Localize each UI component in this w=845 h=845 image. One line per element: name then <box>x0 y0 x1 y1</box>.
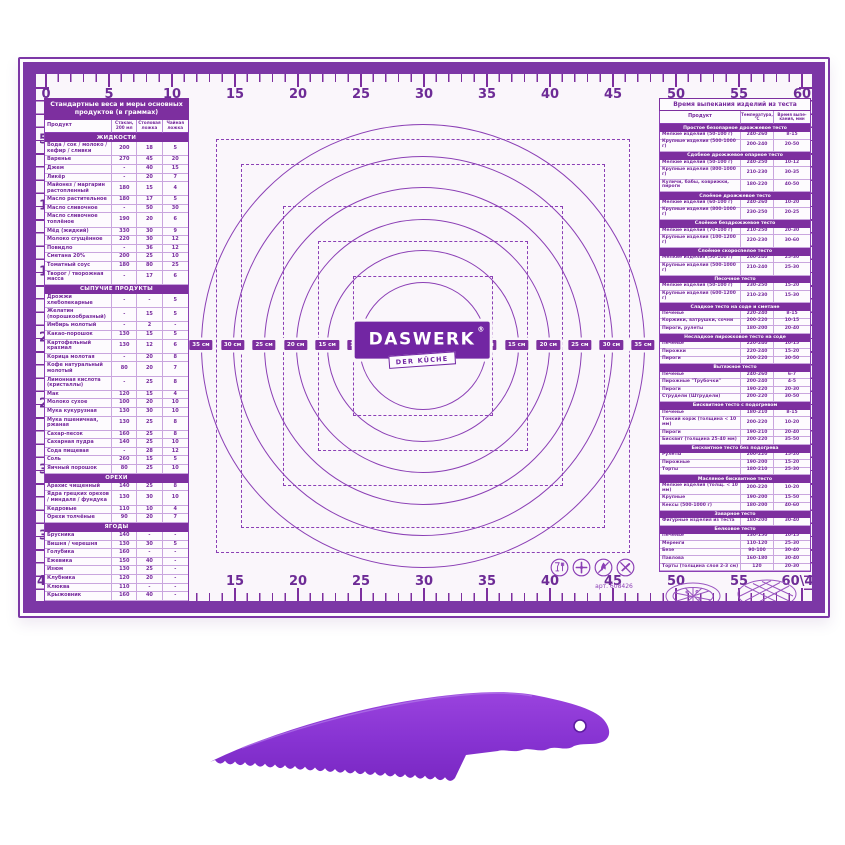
cell: 10 <box>137 506 162 515</box>
cell: 40-60 <box>774 503 810 511</box>
cell: 5 <box>163 331 188 340</box>
ruler-number: 30 <box>415 574 433 589</box>
table-row: Масло сливочное топлёное190206 <box>45 213 188 227</box>
food-safe-icon <box>550 558 569 577</box>
product-photo: 051015202530354045505560 405101520253035… <box>0 0 845 845</box>
cell: Масло сливочное <box>45 205 112 214</box>
cell: 30 <box>137 228 162 237</box>
cell: 330 <box>112 228 137 237</box>
cell: 4 <box>163 182 188 196</box>
table-row: Брусника140-- <box>45 532 188 541</box>
cell: Вишня / черешня <box>45 541 112 550</box>
cell: 130 <box>112 491 137 505</box>
cell: 12 <box>137 340 162 354</box>
cell: 10-20 <box>774 417 810 429</box>
cell: 10 <box>163 491 188 505</box>
cell: 7 <box>163 174 188 183</box>
ruler-number: 45 <box>604 87 622 102</box>
table-row: Варенье2704520 <box>45 156 188 165</box>
cell: 200-220 <box>741 394 774 402</box>
cell: 130 <box>112 408 137 417</box>
column-header: Температура, °C <box>741 111 774 124</box>
diameter-label: 20 см <box>537 340 560 350</box>
cell: 25 <box>137 253 162 262</box>
section-header: ЖИДКОСТИ <box>45 133 188 142</box>
table-row: Кедровые110104 <box>45 506 188 515</box>
cell: 220 <box>112 236 137 245</box>
cell: 200-220 <box>741 437 774 445</box>
cell: - <box>163 584 188 593</box>
cell: 15 <box>137 308 162 322</box>
table-row: Фигурные изделия из теста180-20030-40 <box>660 518 810 526</box>
cell: Клюква <box>45 584 112 593</box>
cell: Мёд (жидкий) <box>45 228 112 237</box>
table-row: Джем-4015 <box>45 165 188 174</box>
cell: - <box>112 448 137 457</box>
table-row: Пироги200-22030-50 <box>660 357 810 365</box>
diameter-label: 15 см <box>505 340 528 350</box>
cell: Томатный соус <box>45 262 112 271</box>
cell: Тонкий корж (толщина < 10 мм) <box>660 417 741 429</box>
cell: 20 <box>137 514 162 523</box>
column-header: Продукт <box>660 111 741 124</box>
cell: - <box>112 294 137 308</box>
ruler-number: 30 <box>415 87 433 102</box>
cell: 7 <box>163 362 188 376</box>
cell: 260 <box>112 456 137 465</box>
diameter-label: 25 см <box>252 340 275 350</box>
cell: 2 <box>137 322 162 331</box>
column-header: Продукт <box>45 120 112 133</box>
column-header: Чайная ложка <box>163 120 188 133</box>
baking-mat: 051015202530354045505560 405101520253035… <box>18 57 830 618</box>
cell: 110 <box>112 584 137 593</box>
cell: Какао-порошок <box>45 331 112 340</box>
table-row: Клубника12020- <box>45 575 188 584</box>
cell: - <box>163 592 188 601</box>
cell: Молоко сгущённое <box>45 236 112 245</box>
ruler-number: 25 <box>352 574 370 589</box>
cell: 140 <box>112 532 137 541</box>
cell: 130 <box>112 331 137 340</box>
cell: 10 <box>163 465 188 474</box>
table-row: Мелкие изделия (50-100 г)200-24025-30 <box>660 256 810 264</box>
cell: 10-20 <box>774 200 810 208</box>
cell: 40 <box>137 592 162 601</box>
cell: - <box>137 549 162 558</box>
table-row: Майонез / маргарин растопленный180154 <box>45 182 188 196</box>
cell: - <box>163 549 188 558</box>
section-header: Слоёное бездрожжевое тесто <box>660 220 810 228</box>
baking-table-header: ПродуктТемпература, °CВремя выпе- кания,… <box>660 111 810 124</box>
cell: Павлова <box>660 556 741 564</box>
cell: 20 <box>137 354 162 363</box>
cell: 35-50 <box>774 437 810 445</box>
table-row: Лимонная кислота (кристаллы)-258 <box>45 377 188 391</box>
cell: - <box>137 584 162 593</box>
cell: 180 <box>112 262 137 271</box>
cell: 130 <box>112 566 137 575</box>
cell: 20 <box>137 362 162 376</box>
brand-logo: DASWERK® DER KÜCHE <box>355 322 490 367</box>
cell: - <box>112 205 137 214</box>
table-row: Крупные изделия (600-1200 г)210-23015-30 <box>660 291 810 303</box>
ruler-number: 40 <box>541 87 559 102</box>
cell: 8 <box>163 431 188 440</box>
cell: 220-230 <box>741 235 774 247</box>
ruler-number: 15 <box>226 87 244 102</box>
cell: 120 <box>112 391 137 400</box>
cell: 150 <box>112 558 137 567</box>
cell: 160 <box>112 549 137 558</box>
cell: 190-200 <box>741 495 774 503</box>
table-row: Творог / творожная масса-176 <box>45 271 188 285</box>
cell: 20-25 <box>774 208 810 220</box>
section-header: ОРЕХИ <box>45 474 188 483</box>
diameter-label: 35 см <box>189 340 212 350</box>
cell: 25-30 <box>774 256 810 264</box>
ruler-number: 35 <box>478 87 496 102</box>
cell: Соль <box>45 456 112 465</box>
cell: 30-40 <box>774 518 810 526</box>
baking-time-table: Время выпекания изделий из тестаПродуктТ… <box>659 98 811 572</box>
cell: 25 <box>137 465 162 474</box>
cell: Молоко сухое <box>45 399 112 408</box>
cell: 20 <box>137 399 162 408</box>
table-row: Крупные изделия (800-1000 г)210-23030-35 <box>660 167 810 179</box>
cell: 25-30 <box>774 468 810 476</box>
weights-table: ПродуктСтакан, 200 млСтоловая ложкаЧайна… <box>44 120 189 601</box>
knife-hang-hole <box>574 720 586 732</box>
cell: 130 <box>112 417 137 431</box>
cell: Дрожжи хлебопекарные <box>45 294 112 308</box>
ruler-number: 20 <box>289 574 307 589</box>
cell: 230-250 <box>741 283 774 291</box>
cell: 200 <box>112 253 137 262</box>
table-row: Мелкие изделия (50-100 г)230-25015-20 <box>660 283 810 291</box>
cell: 200-220 <box>741 483 774 495</box>
cell: 220-240 <box>741 342 774 350</box>
cell: 10-12 <box>774 160 810 168</box>
cell: 140 <box>112 483 137 492</box>
cell: Майонез / маргарин растопленный <box>45 182 112 196</box>
ruler-number: 20 <box>289 87 307 102</box>
cell: 8 <box>163 377 188 391</box>
cell: 30-50 <box>774 357 810 365</box>
cell: 8 <box>163 417 188 431</box>
cell: Струдели (Штрудели) <box>660 394 741 402</box>
cell: Клубника <box>45 575 112 584</box>
table-row: Печенье220-24010-15 <box>660 342 810 350</box>
column-header: Столовая ложка <box>137 120 162 133</box>
cell: 30 <box>137 491 162 505</box>
table-row: Вишня / черешня130305 <box>45 541 188 550</box>
cell: 10 <box>163 439 188 448</box>
cell: - <box>112 354 137 363</box>
cell: 15-20 <box>774 283 810 291</box>
measures-title: Стандартные веса и меры основных продукт… <box>44 98 189 120</box>
cell: Крупные изделия (500-1000 г) <box>660 140 741 152</box>
ruler-number: 35 <box>478 574 496 589</box>
cell: Торты <box>660 468 741 476</box>
cell: Мак <box>45 391 112 400</box>
ruler-ticks-top <box>45 74 808 82</box>
cell: Крупные изделия (100-1200 г) <box>660 235 741 247</box>
cell: 40-50 <box>774 180 810 192</box>
table-row: Повидло-3612 <box>45 245 188 254</box>
table-row: Сода пищевая-2812 <box>45 448 188 457</box>
table-row: Дрожжи хлебопекарные--5 <box>45 294 188 308</box>
cell: - <box>163 558 188 567</box>
cell: - <box>163 575 188 584</box>
cell: 10 <box>163 253 188 262</box>
table-row: Мак120154 <box>45 391 188 400</box>
cell: 180-220 <box>741 180 774 192</box>
cell: 20-30 <box>774 228 810 236</box>
no-open-flame-icon <box>594 558 613 577</box>
section-header: Простое безопарное дрожжевое тесто <box>660 124 810 132</box>
table-row: Ядра грецких орехов / миндаля / фундука1… <box>45 491 188 505</box>
cell: 25 <box>163 262 188 271</box>
table-row: Ежевика15040- <box>45 558 188 567</box>
cell: Куличи, бабы, коврижки, пироги <box>660 180 741 192</box>
table-row: Имбирь молотый-2- <box>45 322 188 331</box>
crossed-cutlery-icon <box>572 558 591 577</box>
no-cutting-icon <box>616 558 635 577</box>
table-row: Крыжовник16040- <box>45 592 188 601</box>
table-row: Пирожные "Трубочки"200-2404-5 <box>660 379 810 387</box>
cell: Печенье <box>660 342 741 350</box>
cell: Картофельный крахмал <box>45 340 112 354</box>
section-header: Масляное бисквитное тесто <box>660 475 810 483</box>
cell: 10-15 <box>774 342 810 350</box>
table-row: Крупные изделия (500-1000 г)200-24020-50 <box>660 140 810 152</box>
table-row: Соль260155 <box>45 456 188 465</box>
cell: 20 <box>137 213 162 227</box>
table-row: Мука пшеничная, ржаная130258 <box>45 417 188 431</box>
cell: 12 <box>163 236 188 245</box>
cell: 12 <box>163 448 188 457</box>
section-header: Слоёное дрожжевое тесто <box>660 192 810 200</box>
table-row: Струдели (Штрудели)200-22030-50 <box>660 394 810 402</box>
article-number: арт. 608426 <box>574 583 654 590</box>
weights-table-header: ПродуктСтакан, 200 млСтоловая ложкаЧайна… <box>45 120 188 133</box>
cell: 4 <box>163 391 188 400</box>
cell: 8 <box>163 354 188 363</box>
cell: 4-5 <box>774 379 810 387</box>
cell: Пирожные "Трубочки" <box>660 379 741 387</box>
cell: 30 <box>137 541 162 550</box>
table-row: Торты (толщина слоя 2-3 см)12020-30 <box>660 564 810 572</box>
cell: - <box>112 174 137 183</box>
knife-body <box>210 692 609 781</box>
table-row: Мёд (жидкий)330309 <box>45 228 188 237</box>
cell: Творог / творожная масса <box>45 271 112 285</box>
cell: 10 <box>163 408 188 417</box>
table-row: Мука кукурузная1303010 <box>45 408 188 417</box>
table-row: Томатный соус1808025 <box>45 262 188 271</box>
cell: Мелкие изделия (50-100 г) <box>660 283 741 291</box>
table-row: Картофельный крахмал130126 <box>45 340 188 354</box>
cell: Варенье <box>45 156 112 165</box>
cell: 5 <box>163 294 188 308</box>
table-row: Ликёр-207 <box>45 174 188 183</box>
cell: 20 <box>137 575 162 584</box>
cell: 7 <box>163 514 188 523</box>
plastic-knife <box>202 682 622 804</box>
cell: 6 <box>163 340 188 354</box>
cell: 30 <box>163 205 188 214</box>
cell: Джем <box>45 165 112 174</box>
table-row: Крупные изделия (100-1200 г)220-23030-60 <box>660 235 810 247</box>
cell: 210-230 <box>741 167 774 179</box>
cell: 9 <box>163 228 188 237</box>
cell: Мелкие изделия (толщ. < 10 мм) <box>660 483 741 495</box>
cell: 80 <box>112 465 137 474</box>
cell: Лимонная кислота (кристаллы) <box>45 377 112 391</box>
cell: 25 <box>137 431 162 440</box>
table-row: Бисквит (толщина 25-40 мм)200-22035-50 <box>660 437 810 445</box>
cell: 10-20 <box>774 483 810 495</box>
table-row: Пироги, рулеты180-20020-40 <box>660 326 810 334</box>
table-row: Изюм13025- <box>45 566 188 575</box>
cell: Голубика <box>45 549 112 558</box>
cell: 270 <box>112 156 137 165</box>
cell: 130 <box>112 340 137 354</box>
cell: 190 <box>112 213 137 227</box>
cell: 180-200 <box>741 503 774 511</box>
cell: 36 <box>137 245 162 254</box>
cell: 40 <box>137 165 162 174</box>
cell: 130 <box>112 541 137 550</box>
cell: 17 <box>137 271 162 285</box>
cell: 40 <box>137 558 162 567</box>
cell: Яичный порошок <box>45 465 112 474</box>
table-row: Масло сливочное-5030 <box>45 205 188 214</box>
ruler-number: 25 <box>352 87 370 102</box>
cell: 180-210 <box>741 410 774 418</box>
cell: 240-260 <box>741 132 774 140</box>
cell: Крупные <box>660 495 741 503</box>
cell: 5 <box>163 196 188 205</box>
cell: 25 <box>137 377 162 391</box>
cell: 6 <box>163 271 188 285</box>
cell: 5 <box>163 541 188 550</box>
section-header: СЫПУЧИЕ ПРОДУКТЫ <box>45 285 188 294</box>
cell: 30-50 <box>774 394 810 402</box>
cell: 110 <box>112 506 137 515</box>
cell: 210-230 <box>741 291 774 303</box>
cell: Сметана 20% <box>45 253 112 262</box>
cell: - <box>112 245 137 254</box>
cell: Пироги, рулеты <box>660 326 741 334</box>
cell: - <box>112 377 137 391</box>
cell: 80 <box>112 362 137 376</box>
registered-mark: ® <box>477 326 486 334</box>
cell: Крупные изделия (800-1000 г) <box>660 208 741 220</box>
cell: 8 <box>163 483 188 492</box>
cell: Кофе натуральный молотый <box>45 362 112 376</box>
table-row: Арахис чищенный140258 <box>45 483 188 492</box>
cell: 12 <box>163 245 188 254</box>
cell: 30-40 <box>774 556 810 564</box>
cell: Крупные изделия (500-1000 г) <box>660 263 741 275</box>
table-row: Сахар-песок160258 <box>45 431 188 440</box>
cell: 30-60 <box>774 235 810 247</box>
care-icons <box>550 558 635 577</box>
cell: 240-250 <box>741 160 774 168</box>
cell: Ядра грецких орехов / миндаля / фундука <box>45 491 112 505</box>
cell: - <box>137 532 162 541</box>
cell: Пироги <box>660 357 741 365</box>
cell: - <box>137 294 162 308</box>
cell: 100 <box>112 399 137 408</box>
table-row: Вода / сок / молоко / кефир / сливки2001… <box>45 142 188 156</box>
table-row: Клюква110-- <box>45 584 188 593</box>
cell: 180 <box>112 196 137 205</box>
column-header: Стакан, 200 мл <box>112 120 137 133</box>
cell: 160 <box>112 431 137 440</box>
cell: 18 <box>137 142 162 156</box>
cell: Орехи толчёные <box>45 514 112 523</box>
table-row: Павлова160-18030-40 <box>660 556 810 564</box>
cell: - <box>112 308 137 322</box>
cell: Масло сливочное топлёное <box>45 213 112 227</box>
cell: 20 <box>163 156 188 165</box>
cell: 20-40 <box>774 326 810 334</box>
cell: 15 <box>163 165 188 174</box>
section-header: Бисквитное тесто с подогревом <box>660 402 810 410</box>
table-row: Крупные изделия (800-1000 г)230-25020-25 <box>660 208 810 220</box>
cell: Масло растительное <box>45 196 112 205</box>
cell: 25 <box>137 566 162 575</box>
cell: 160 <box>112 592 137 601</box>
measures-panel: Стандартные веса и меры основных продукт… <box>44 98 189 601</box>
cell: 210-240 <box>741 263 774 275</box>
diameter-label: 15 см <box>316 340 339 350</box>
cell: Желатин (порошкообразный) <box>45 308 112 322</box>
cell: Вода / сок / молоко / кефир / сливки <box>45 142 112 156</box>
mat-surface: 051015202530354045505560 405101520253035… <box>36 74 812 601</box>
cell: 15-30 <box>774 291 810 303</box>
cell: Сахарная пудра <box>45 439 112 448</box>
baking-table-title: Время выпекания изделий из теста <box>659 98 811 111</box>
cell: 50 <box>137 205 162 214</box>
cell: Мелкие изделия (50-100 г) <box>660 256 741 264</box>
cell: - <box>163 322 188 331</box>
cell: 5 <box>163 456 188 465</box>
table-row: Торты180-21025-30 <box>660 468 810 476</box>
cell: Кексы (500-1000 г) <box>660 503 741 511</box>
cell: 30 <box>137 236 162 245</box>
cell: 30 <box>137 408 162 417</box>
table-row: Сметана 20%2002510 <box>45 253 188 262</box>
cell: 15 <box>137 456 162 465</box>
section-header: Сладкое тесто на соде и сметане <box>660 303 810 311</box>
cell: 5 <box>163 308 188 322</box>
cell: 120 <box>741 564 774 572</box>
ruler-ticks-top-major <box>45 74 808 87</box>
cell: 200-220 <box>741 417 774 429</box>
cell: Крыжовник <box>45 592 112 601</box>
section-header: Сдобное дрожжевое опарное тесто <box>660 152 810 160</box>
cell: 28 <box>137 448 162 457</box>
table-row: Мелкие изделия (толщ. < 10 мм)200-22010-… <box>660 483 810 495</box>
table-row: Куличи, бабы, коврижки, пироги180-22040-… <box>660 180 810 192</box>
cell: 17 <box>137 196 162 205</box>
cell: 180-200 <box>741 326 774 334</box>
cell: 25 <box>137 417 162 431</box>
